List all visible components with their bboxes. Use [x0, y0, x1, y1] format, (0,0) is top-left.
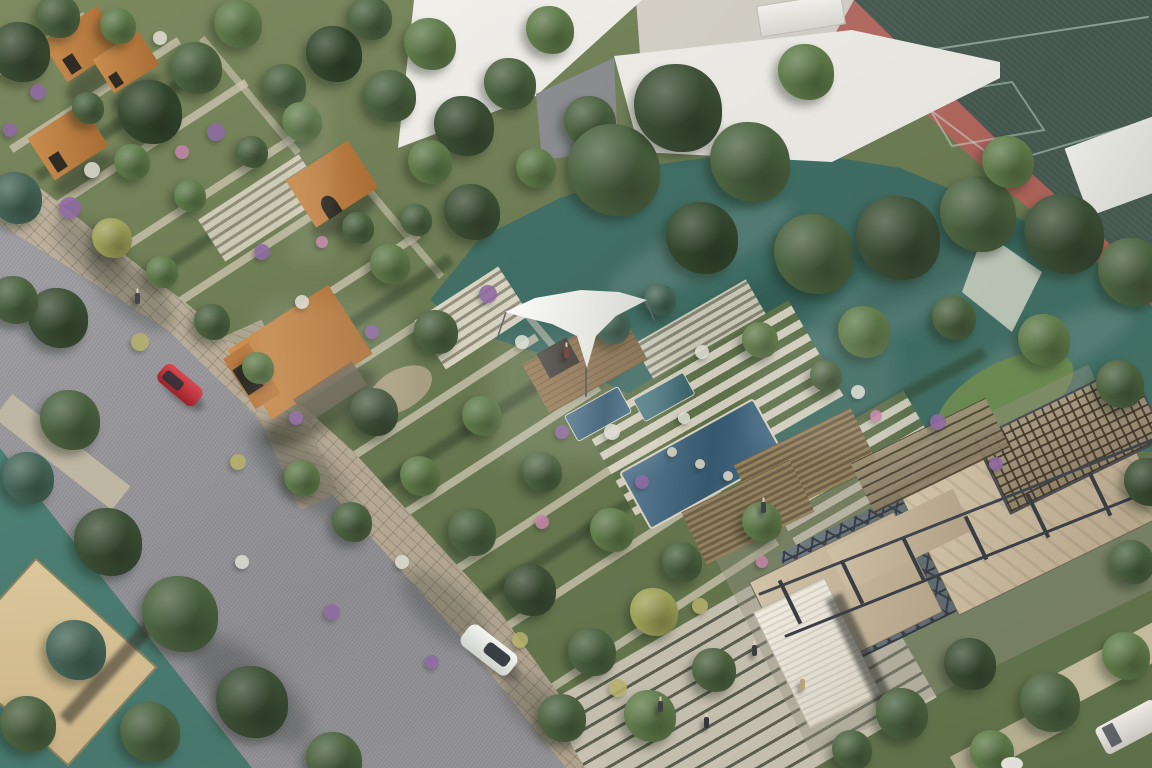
tree — [504, 564, 556, 616]
tree — [630, 588, 678, 636]
pedestrian — [564, 347, 569, 358]
tree — [1102, 632, 1150, 680]
tree — [516, 148, 556, 188]
tree — [114, 144, 150, 180]
tree — [404, 18, 456, 70]
tree — [284, 460, 320, 496]
white-dome-structure — [1001, 757, 1023, 768]
tree — [692, 648, 736, 692]
flower-patch-white — [84, 162, 100, 178]
flower-patch-purple — [207, 123, 225, 141]
tree — [72, 92, 104, 124]
tree — [1096, 360, 1144, 408]
tree — [400, 456, 440, 496]
flower-patch-purple — [254, 244, 270, 260]
stepping-stone — [695, 459, 705, 469]
watermark-blob — [288, 95, 332, 265]
pedestrian — [704, 717, 709, 728]
tree — [194, 304, 230, 340]
flower-patch-white — [695, 345, 709, 359]
flower-patch-purple — [324, 604, 340, 620]
shrub-yellow — [230, 454, 246, 470]
tree — [1018, 314, 1070, 366]
tree — [944, 638, 996, 690]
pedestrian — [800, 679, 805, 690]
watermark-blob — [255, 300, 405, 420]
tree — [92, 218, 132, 258]
watermark-blob — [490, 335, 670, 465]
tree — [170, 42, 222, 94]
shrub-yellow — [512, 632, 528, 648]
tree — [448, 508, 496, 556]
tree — [484, 58, 536, 110]
watermark-blob — [745, 333, 895, 448]
flower-patch-purple — [425, 655, 439, 669]
tree — [662, 542, 702, 582]
tree — [214, 0, 262, 48]
flower-patch-purple — [3, 123, 17, 137]
tree — [526, 6, 574, 54]
tree — [876, 688, 928, 740]
tree — [400, 204, 432, 236]
flower-patch-white — [395, 555, 409, 569]
tree — [624, 690, 676, 742]
tree — [2, 452, 54, 504]
flower-patch-purple — [479, 285, 497, 303]
shrub-yellow — [692, 598, 708, 614]
flower-patch-pink — [175, 145, 189, 159]
tree — [538, 694, 586, 742]
tree — [236, 136, 268, 168]
tree — [146, 256, 178, 288]
pedestrian — [761, 502, 766, 513]
tree — [590, 508, 634, 552]
flower-patch-pink — [756, 556, 768, 568]
flower-patch-white — [235, 555, 249, 569]
tree — [332, 502, 372, 542]
flower-patch-pink — [535, 515, 549, 529]
pedestrian — [752, 645, 757, 656]
flower-patch-purple — [930, 414, 946, 430]
tree — [342, 212, 374, 244]
shrub-yellow — [131, 333, 149, 351]
aerial-park-rendering — [0, 0, 1152, 768]
tree — [364, 70, 416, 122]
tree — [408, 140, 452, 184]
tree — [644, 284, 676, 316]
tree — [832, 730, 872, 768]
shrub-yellow — [609, 679, 627, 697]
tree — [100, 8, 136, 44]
pedestrian — [658, 701, 663, 712]
tree — [414, 310, 458, 354]
flower-patch-white — [678, 412, 690, 424]
stepping-stone — [723, 471, 733, 481]
flower-patch-white — [153, 31, 167, 45]
tree — [568, 628, 616, 676]
tree — [370, 244, 410, 284]
pedestrian — [135, 293, 140, 304]
tree — [982, 136, 1034, 188]
tree — [932, 296, 976, 340]
tree — [174, 180, 206, 212]
flower-patch-purple — [30, 84, 46, 100]
flower-patch-purple — [989, 457, 1003, 471]
flower-patch-purple — [635, 475, 649, 489]
flower-patch-purple — [59, 197, 81, 219]
